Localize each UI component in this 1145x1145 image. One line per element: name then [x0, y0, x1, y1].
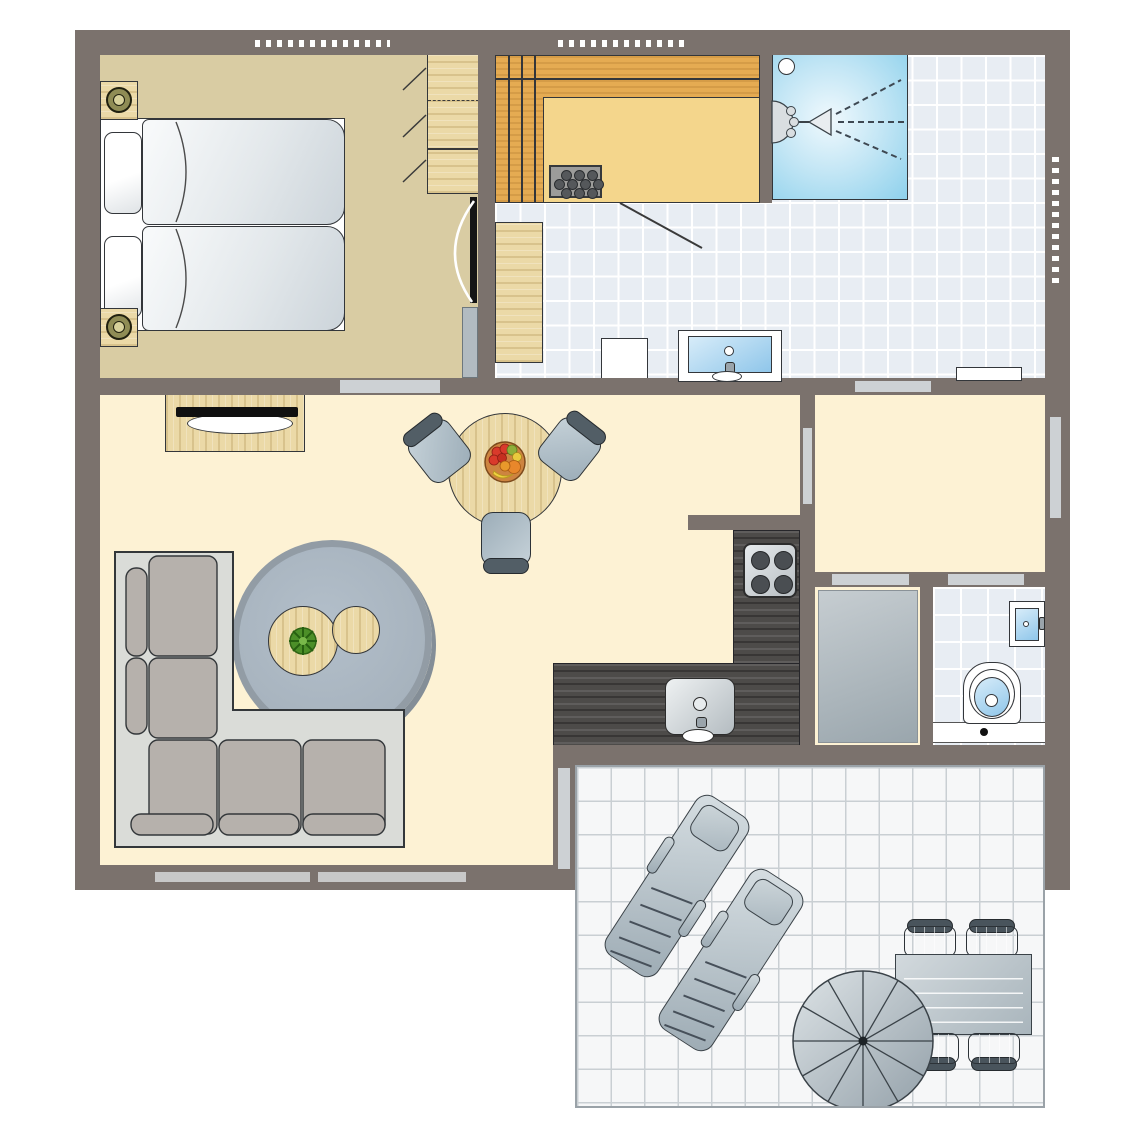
duvet-bottom [142, 226, 345, 331]
lounger-armrest [645, 835, 677, 876]
heater-stone [587, 188, 598, 199]
bedroom-door-leaf [470, 197, 477, 303]
washbasin-tap-base [712, 371, 742, 382]
toilet-shelf [933, 722, 1045, 743]
outdoor-chair-1 [904, 919, 956, 957]
outdoor-chair-2 [966, 919, 1018, 957]
bathroom-side-window [1052, 157, 1059, 287]
storage-door-opening [832, 574, 909, 585]
hob-burner [751, 575, 770, 594]
wardrobe [427, 53, 480, 194]
duvet-top [142, 119, 345, 225]
hand-basin-tap [1039, 617, 1045, 630]
wall-kitchen-stub [688, 515, 815, 530]
fruit-bowl [483, 440, 527, 484]
washbasin-drain [724, 346, 734, 356]
wardrobe-shelf [428, 148, 479, 150]
pillow-top [104, 132, 142, 214]
terrace-sliding-door [558, 768, 570, 869]
heater-stone [561, 188, 572, 199]
sink-tap [696, 717, 707, 728]
wall-bedroom-bathroom [478, 55, 495, 378]
parasol [791, 969, 935, 1108]
toilet-drain [985, 694, 998, 707]
lounger-armrest [699, 909, 731, 950]
hallway-floor [815, 395, 1045, 572]
toilet-door-opening [948, 574, 1024, 585]
shower [772, 53, 908, 200]
wall-storage-toilet [920, 587, 933, 745]
floor-plan [0, 0, 1145, 1145]
sauna [495, 55, 760, 203]
sink-drain [693, 697, 707, 711]
bathroom-door-opening [855, 381, 931, 392]
living-window-1 [155, 872, 310, 882]
sink-tap-base [682, 729, 714, 743]
bedroom-vent-window [255, 40, 390, 47]
terrace [575, 765, 1045, 1108]
bathroom-bench [495, 222, 543, 363]
wardrobe-shelf-dashed [428, 100, 479, 101]
hallway-door-opening [803, 428, 812, 504]
bathroom-radiator [956, 367, 1022, 381]
lounger-pillow [686, 801, 743, 855]
bedroom-door-opening [340, 380, 440, 393]
hob-burner [774, 551, 793, 570]
bathroom-stool [601, 338, 648, 380]
pillow-bottom [104, 236, 142, 318]
storage-unit [818, 590, 918, 743]
outdoor-chair-4 [968, 1033, 1020, 1071]
corner-sofa [110, 548, 410, 852]
heater-stone [574, 188, 585, 199]
hob [743, 543, 797, 598]
wall-left [75, 30, 100, 890]
bedroom-radiator [462, 307, 478, 378]
toilet-flush-button [980, 728, 988, 736]
sauna-heater [549, 165, 602, 198]
bathroom-vent-window [558, 40, 690, 47]
tv [176, 407, 298, 417]
dining-chair-bottom [481, 512, 531, 574]
hand-basin-drain [1023, 621, 1029, 627]
lounger-pillow [740, 875, 797, 929]
hob-burner [751, 551, 770, 570]
table-lamp-bottom-shade [113, 321, 125, 333]
living-window-2 [318, 872, 466, 882]
wall-sauna-shower [760, 53, 772, 203]
hob-burner [774, 575, 793, 594]
entrance-door [1050, 417, 1061, 518]
shower-drain [778, 58, 795, 75]
table-lamp-top-shade [113, 94, 125, 106]
